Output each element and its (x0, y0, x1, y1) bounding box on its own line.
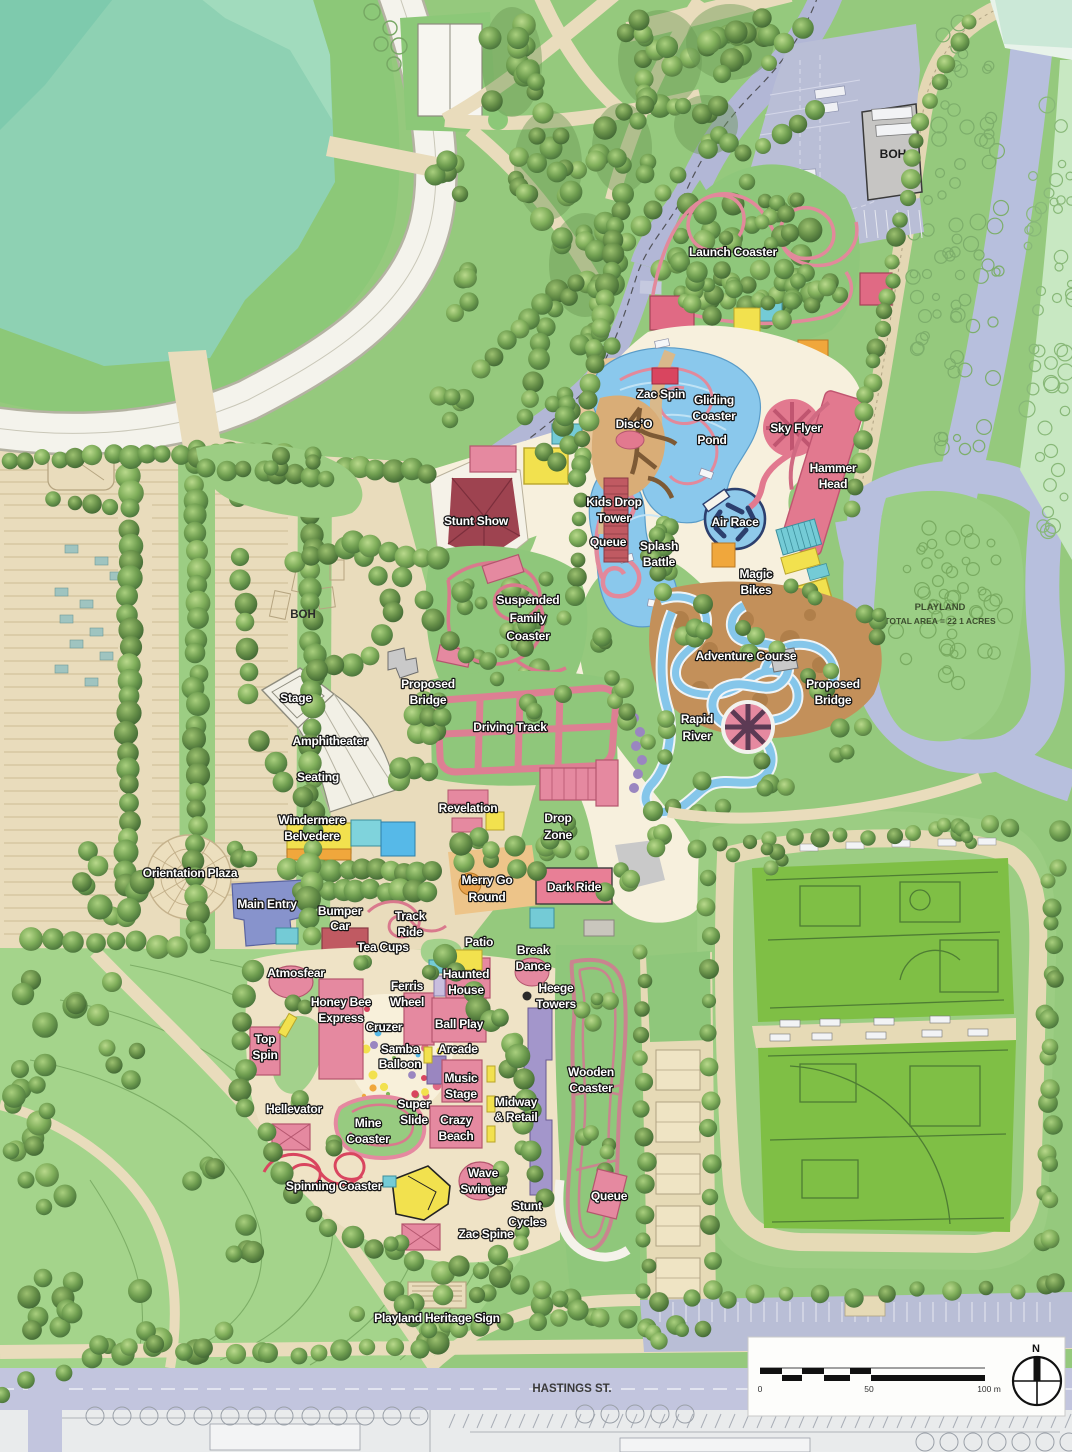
svg-text:Cycles: Cycles (508, 1215, 546, 1229)
svg-text:Kids Drop: Kids Drop (586, 495, 642, 509)
svg-text:Zac Spin: Zac Spin (637, 387, 685, 401)
svg-text:Bridge: Bridge (410, 693, 447, 707)
svg-text:Wooden: Wooden (568, 1065, 614, 1079)
svg-text:Orientation Plaza: Orientation Plaza (143, 866, 238, 880)
svg-text:Atmosfear: Atmosfear (267, 966, 325, 980)
svg-text:Seating: Seating (297, 770, 339, 784)
svg-text:Head: Head (819, 477, 848, 491)
svg-text:50: 50 (864, 1384, 874, 1394)
svg-text:Proposed: Proposed (806, 677, 860, 691)
svg-text:Amphitheater: Amphitheater (293, 734, 368, 748)
svg-text:Bumper: Bumper (318, 904, 363, 918)
svg-text:BOH: BOH (290, 609, 316, 621)
svg-text:Coaster: Coaster (569, 1081, 613, 1095)
svg-text:Magic: Magic (739, 567, 773, 581)
svg-text:Express: Express (318, 1011, 364, 1025)
svg-text:Honey Bee: Honey Bee (311, 995, 372, 1009)
svg-text:Patio: Patio (465, 935, 493, 949)
svg-text:Spinning Coaster: Spinning Coaster (286, 1179, 383, 1193)
svg-text:Wave: Wave (468, 1166, 499, 1180)
svg-text:HASTINGS ST.: HASTINGS ST. (532, 1383, 611, 1395)
svg-text:Slide: Slide (400, 1113, 428, 1127)
svg-text:Queue: Queue (591, 1189, 628, 1203)
svg-text:Driving Track: Driving Track (473, 720, 547, 734)
svg-text:Top: Top (255, 1032, 276, 1046)
svg-text:Dance: Dance (515, 959, 551, 973)
svg-text:Crazy: Crazy (440, 1113, 472, 1127)
svg-text:Pond: Pond (697, 433, 726, 447)
svg-text:Bridge: Bridge (815, 693, 852, 707)
svg-text:Merry Go: Merry Go (461, 873, 512, 887)
svg-text:Coaster: Coaster (346, 1132, 390, 1146)
svg-text:Ball Play: Ball Play (435, 1017, 484, 1031)
svg-text:Sky Flyer: Sky Flyer (770, 421, 822, 435)
svg-text:River: River (682, 729, 712, 743)
svg-text:Stage: Stage (445, 1087, 477, 1101)
svg-text:Round: Round (469, 890, 506, 904)
svg-text:Track: Track (395, 909, 426, 923)
svg-text:Suspended: Suspended (497, 593, 560, 607)
svg-text:Ride: Ride (397, 925, 423, 939)
svg-text:Launch Coaster: Launch Coaster (689, 245, 777, 259)
svg-text:Music: Music (444, 1071, 478, 1085)
svg-text:PLAYLAND: PLAYLAND (915, 602, 966, 613)
svg-text:N: N (1032, 1343, 1040, 1355)
svg-text:Bikes: Bikes (740, 583, 772, 597)
svg-text:Proposed: Proposed (401, 677, 455, 691)
svg-text:Super: Super (397, 1097, 431, 1111)
svg-text:Battle: Battle (643, 555, 676, 569)
svg-text:Heege: Heege (538, 981, 574, 995)
svg-text:Splash: Splash (640, 539, 678, 553)
svg-text:Tower: Tower (597, 511, 631, 525)
svg-text:Arcade: Arcade (438, 1042, 478, 1056)
svg-text:Belvedere: Belvedere (284, 829, 340, 843)
svg-text:Samba: Samba (381, 1042, 420, 1056)
svg-text:Rapid: Rapid (681, 712, 713, 726)
svg-text:Balloon: Balloon (379, 1057, 422, 1071)
svg-text:Hellevator: Hellevator (266, 1102, 323, 1116)
svg-text:Spin: Spin (252, 1048, 277, 1062)
svg-text:Towers: Towers (536, 997, 576, 1011)
svg-text:Stunt Show: Stunt Show (444, 514, 509, 528)
svg-text:Hammer: Hammer (810, 461, 857, 475)
svg-text:Family: Family (510, 611, 547, 625)
svg-text:Drop: Drop (544, 811, 571, 825)
svg-text:Wheel: Wheel (390, 995, 424, 1009)
svg-text:Midway: Midway (495, 1095, 538, 1109)
svg-text:BOH: BOH (880, 147, 907, 161)
svg-text:Cruzer: Cruzer (366, 1020, 403, 1034)
svg-text:Zone: Zone (544, 828, 572, 842)
svg-text:Coaster: Coaster (506, 629, 550, 643)
svg-text:Zac Spine: Zac Spine (459, 1227, 514, 1241)
svg-text:Car: Car (330, 919, 350, 933)
svg-text:TOTAL AREA = 22 1 ACRES: TOTAL AREA = 22 1 ACRES (884, 616, 996, 626)
svg-text:Main Entry: Main Entry (237, 897, 297, 911)
svg-text:Air Race: Air Race (711, 515, 759, 529)
svg-text:Mine: Mine (355, 1116, 382, 1130)
svg-text:0: 0 (758, 1384, 763, 1394)
svg-text:& Retail: & Retail (494, 1110, 537, 1124)
svg-text:House: House (448, 983, 484, 997)
svg-text:Revelation: Revelation (439, 801, 498, 815)
svg-text:Break: Break (517, 943, 550, 957)
svg-text:Haunted: Haunted (443, 967, 490, 981)
svg-text:Swinger: Swinger (460, 1182, 506, 1196)
svg-text:Windermere: Windermere (278, 813, 346, 827)
svg-text:Ferris: Ferris (391, 979, 424, 993)
svg-text:Stage: Stage (280, 691, 312, 705)
svg-text:Dark Ride: Dark Ride (547, 880, 602, 894)
svg-text:Disc’O: Disc’O (616, 417, 653, 431)
svg-text:Stunt: Stunt (512, 1199, 542, 1213)
svg-text:100 m: 100 m (977, 1384, 1001, 1394)
svg-text:Tea Cups: Tea Cups (357, 940, 409, 954)
svg-text:Beach: Beach (438, 1129, 473, 1143)
svg-text:Adventure Course: Adventure Course (696, 649, 797, 663)
svg-text:Queue: Queue (590, 535, 627, 549)
svg-text:Playland Heritage Sign: Playland Heritage Sign (374, 1311, 500, 1325)
svg-text:Gliding: Gliding (694, 393, 734, 407)
svg-text:Coaster: Coaster (692, 409, 736, 423)
